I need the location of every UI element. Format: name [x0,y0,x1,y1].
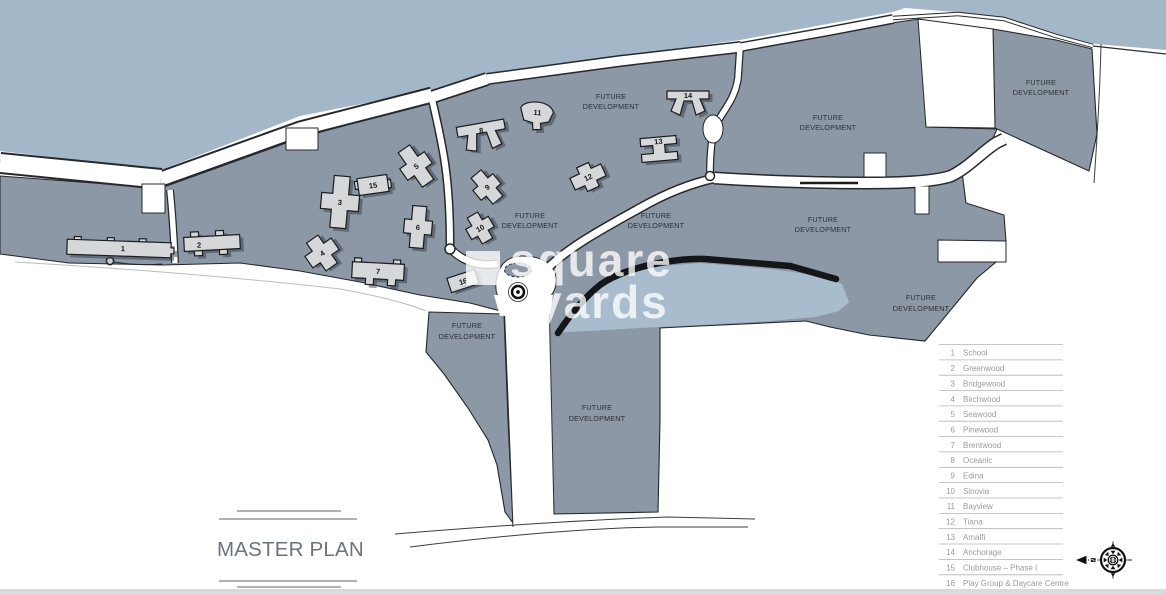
svg-text:7: 7 [951,441,956,450]
svg-text:MASTER PLAN: MASTER PLAN [217,538,364,561]
svg-text:11: 11 [533,108,542,118]
svg-text:Play Group & Daycare Centre: Play Group & Daycare Centre [963,579,1069,588]
svg-text:4: 4 [951,395,956,404]
svg-text:Amalfi: Amalfi [963,533,985,542]
svg-text:6: 6 [951,425,956,434]
svg-text:Tiana: Tiana [963,518,983,527]
svg-text:2: 2 [951,364,956,373]
svg-text:Seawood: Seawood [963,410,996,419]
svg-text:Bridgewood: Bridgewood [963,379,1005,388]
svg-text:12: 12 [946,518,955,527]
svg-text:Brentwood: Brentwood [963,441,1001,450]
svg-text:3: 3 [337,198,342,207]
svg-text:15: 15 [946,564,955,573]
svg-text:School: School [963,349,988,358]
svg-text:14: 14 [946,548,955,557]
svg-text:1: 1 [951,349,956,358]
svg-text:Anchorage: Anchorage [963,548,1002,557]
svg-text:Bayview: Bayview [963,502,993,511]
svg-text:5: 5 [951,410,956,419]
svg-text:8: 8 [951,456,956,465]
svg-text:3: 3 [951,379,956,388]
svg-text:Edina: Edina [963,472,984,481]
svg-text:N: N [1090,557,1097,562]
svg-text:13: 13 [654,137,663,147]
svg-text:yards: yards [536,276,669,328]
svg-text:Sinovia: Sinovia [963,487,990,496]
svg-text:1: 1 [121,244,125,253]
svg-text:9: 9 [951,472,956,481]
svg-text:Greenwood: Greenwood [963,364,1004,373]
svg-text:16: 16 [946,579,955,588]
svg-text:Oceanic: Oceanic [963,456,992,465]
svg-text:15: 15 [368,180,378,190]
svg-text:14: 14 [684,91,693,100]
svg-text:7: 7 [376,267,381,276]
svg-text:10: 10 [946,487,955,496]
svg-text:11: 11 [947,502,956,511]
svg-text:Clubhouse – Phase I: Clubhouse – Phase I [963,564,1037,573]
svg-text:Pinewood: Pinewood [963,425,998,434]
svg-text:6: 6 [415,223,420,232]
svg-text:Birchwood: Birchwood [963,395,1000,404]
svg-text:2: 2 [197,241,202,250]
svg-text:13: 13 [946,533,955,542]
